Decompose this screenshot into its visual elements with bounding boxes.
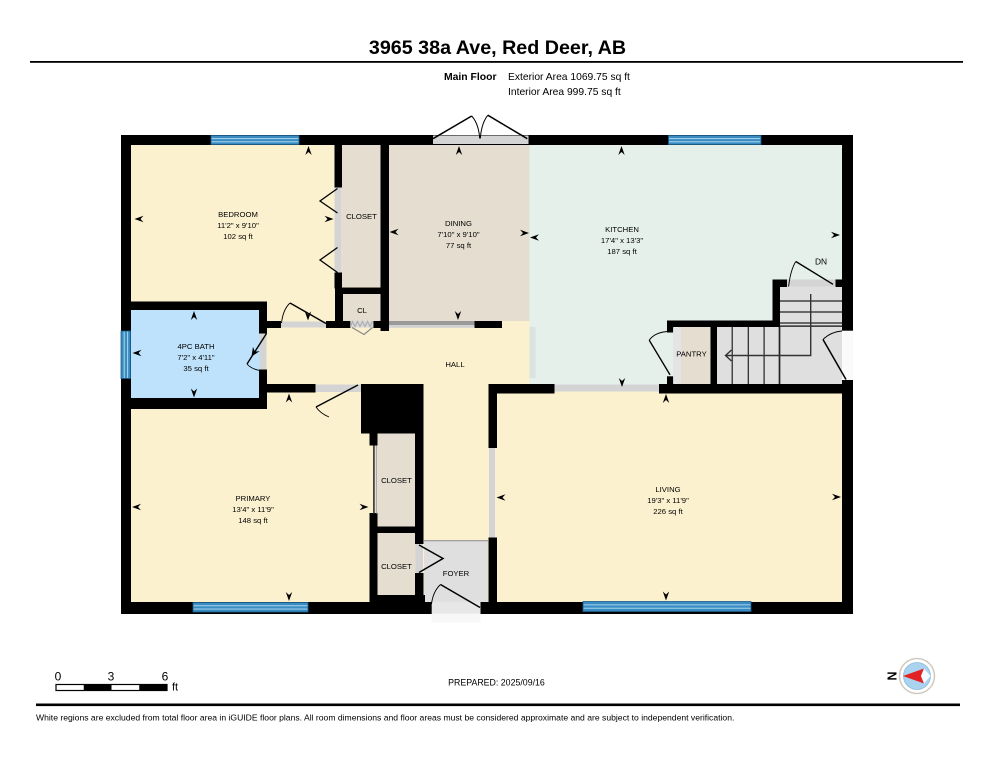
svg-text:77 sq ft: 77 sq ft <box>446 241 472 250</box>
svg-text:PRIMARY: PRIMARY <box>236 494 271 503</box>
svg-text:7'10" x 9'10": 7'10" x 9'10" <box>437 230 479 239</box>
svg-text:LIVING: LIVING <box>655 485 680 494</box>
svg-text:CLOSET: CLOSET <box>381 562 412 571</box>
svg-text:HALL: HALL <box>445 360 465 369</box>
svg-text:DN: DN <box>815 257 827 267</box>
svg-text:Main Floor: Main Floor <box>444 72 497 83</box>
svg-text:CLOSET: CLOSET <box>381 476 412 485</box>
svg-text:PANTRY: PANTRY <box>676 350 706 359</box>
svg-text:6: 6 <box>162 670 169 684</box>
svg-text:7'2" x 4'11": 7'2" x 4'11" <box>177 353 215 362</box>
svg-text:13'4" x 11'9": 13'4" x 11'9" <box>232 505 274 514</box>
svg-text:DINING: DINING <box>445 219 472 228</box>
svg-text:KITCHEN: KITCHEN <box>605 225 639 234</box>
svg-text:3: 3 <box>108 670 115 684</box>
svg-text:Exterior Area 1069.75 sq ft: Exterior Area 1069.75 sq ft <box>508 72 630 83</box>
svg-text:CL: CL <box>357 306 368 315</box>
svg-text:CLOSET: CLOSET <box>346 212 377 221</box>
svg-text:11'2" x 9'10": 11'2" x 9'10" <box>217 221 259 230</box>
svg-text:3965 38a Ave, Red Deer, AB: 3965 38a Ave, Red Deer, AB <box>369 37 626 59</box>
svg-text:226 sq ft: 226 sq ft <box>653 507 683 516</box>
svg-text:Interior Area 999.75 sq ft: Interior Area 999.75 sq ft <box>508 87 621 98</box>
svg-text:FOYER: FOYER <box>443 569 470 578</box>
svg-text:BEDROOM: BEDROOM <box>218 210 258 219</box>
svg-text:N: N <box>885 671 899 680</box>
svg-text:35 sq ft: 35 sq ft <box>183 364 209 373</box>
svg-text:4PC BATH: 4PC BATH <box>177 342 214 351</box>
svg-text:PREPARED: 2025/09/16: PREPARED: 2025/09/16 <box>448 678 545 688</box>
svg-text:19'3" x 11'9": 19'3" x 11'9" <box>647 496 689 505</box>
svg-text:102 sq ft: 102 sq ft <box>223 232 253 241</box>
svg-text:17'4" x 13'3": 17'4" x 13'3" <box>601 236 643 245</box>
svg-text:187 sq ft: 187 sq ft <box>607 247 637 256</box>
svg-text:ft: ft <box>172 682 178 694</box>
svg-text:White regions are excluded fro: White regions are excluded from total fl… <box>36 713 734 723</box>
svg-text:0: 0 <box>55 670 62 684</box>
svg-text:148 sq ft: 148 sq ft <box>238 516 268 525</box>
